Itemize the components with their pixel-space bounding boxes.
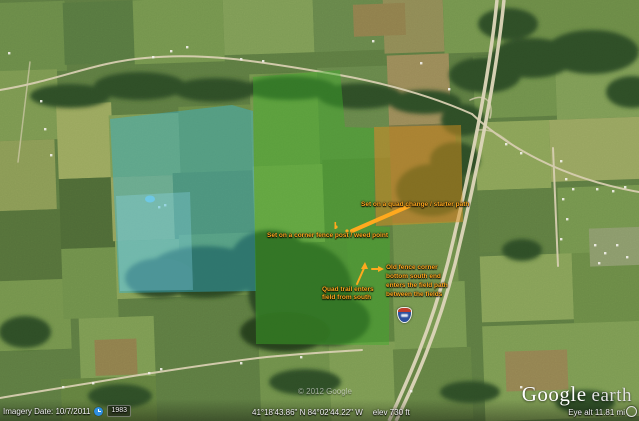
google-earth-logo: Google earth bbox=[522, 382, 632, 407]
placemark-labels: Set on a quad change / starter path Set … bbox=[0, 0, 639, 421]
label-line: Quad trail enters bbox=[322, 286, 374, 294]
label-corner-fence-post[interactable]: Set on a corner fence post / weed point bbox=[267, 232, 388, 240]
imagery-date-label: Imagery Date: 10/7/2011 bbox=[3, 407, 90, 416]
label-line: Old fence corner bbox=[386, 263, 448, 272]
label-quad-trail[interactable]: Quad trail enters field from south bbox=[322, 286, 374, 302]
interstate-shield-icon[interactable] bbox=[397, 307, 412, 323]
copyright-watermark: © 2012 Google bbox=[298, 387, 352, 396]
history-year-badge[interactable]: 1983 bbox=[107, 405, 131, 417]
label-line: bottom south end bbox=[386, 272, 448, 281]
logo-google: Google bbox=[522, 382, 587, 407]
shield-blue-body bbox=[398, 312, 411, 322]
eye-altitude-readout: Eye alt 11.81 mi bbox=[568, 408, 625, 417]
globe-circle-icon bbox=[626, 406, 637, 417]
clock-icon[interactable] bbox=[94, 407, 103, 416]
label-quad-change[interactable]: Set on a quad change / starter path bbox=[361, 201, 469, 209]
label-line: field from south bbox=[322, 294, 374, 302]
label-old-fence-corner[interactable]: Old fence corner bottom south end enters… bbox=[386, 263, 448, 299]
status-left-group: Imagery Date: 10/7/2011 1983 bbox=[3, 405, 131, 417]
google-earth-viewport[interactable]: Set on a quad change / starter path Set … bbox=[0, 0, 639, 421]
lat-lon-readout: 41°18'43.86" N 84°02'44.22" W bbox=[252, 408, 363, 417]
logo-earth: earth bbox=[592, 385, 632, 407]
elevation-readout: elev 730 ft bbox=[373, 408, 410, 417]
status-coordinates-group: 41°18'43.86" N 84°02'44.22" W elev 730 f… bbox=[252, 408, 410, 417]
label-line: enters the field path bbox=[386, 281, 448, 290]
label-line: between the fields bbox=[386, 290, 448, 299]
